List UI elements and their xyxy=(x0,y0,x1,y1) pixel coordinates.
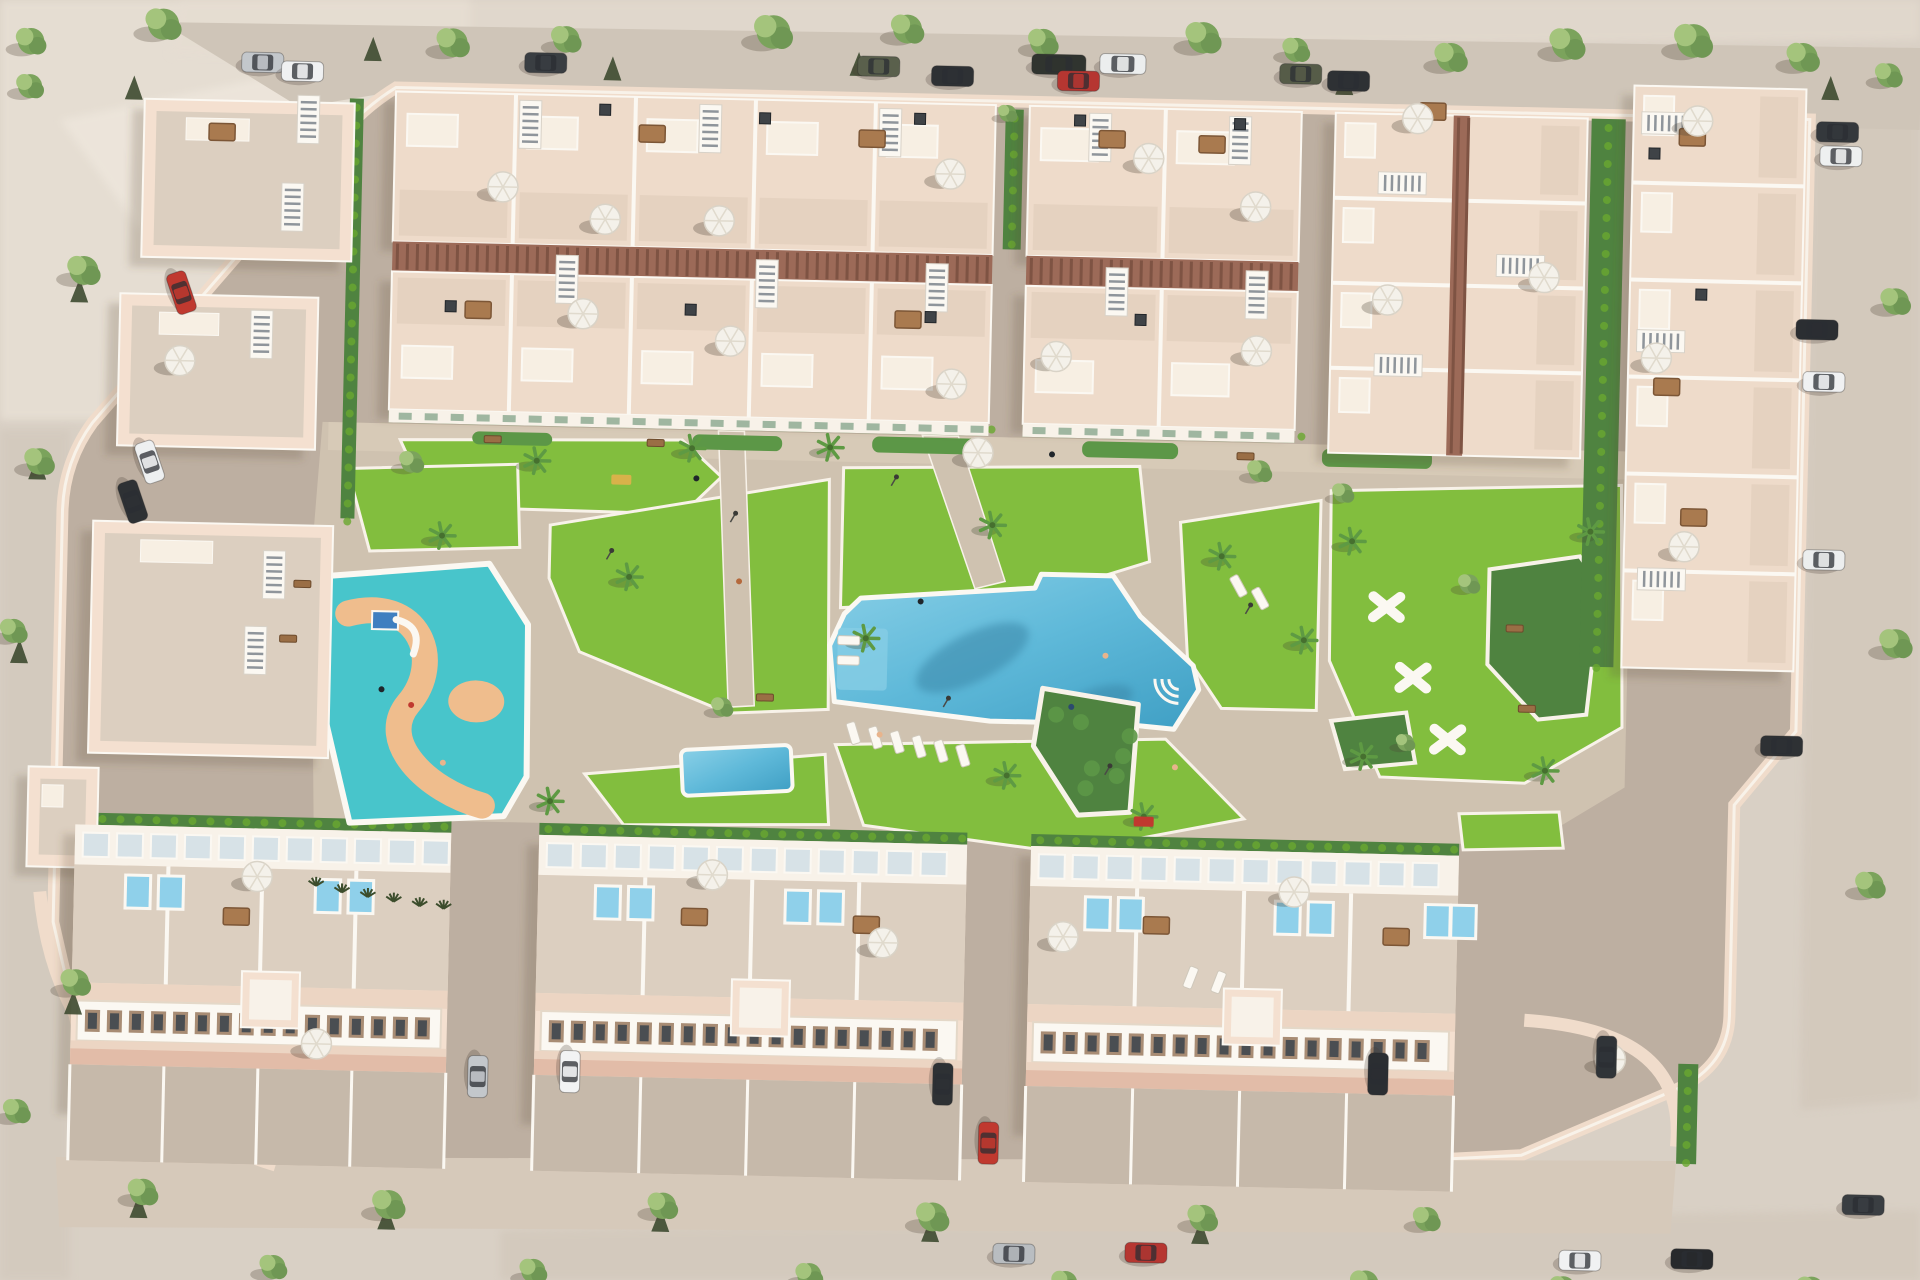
roof-staircase xyxy=(263,551,286,599)
stair-tower xyxy=(731,979,790,1036)
terrain-ground xyxy=(0,0,1920,1280)
car-shadow xyxy=(1273,67,1319,88)
car-shadow xyxy=(235,56,281,77)
bench xyxy=(484,436,501,443)
parasol-canopy xyxy=(568,298,599,329)
window-frame xyxy=(1216,1035,1231,1057)
roof-staircase xyxy=(755,260,778,308)
parasol-rib xyxy=(495,187,503,200)
party-wall xyxy=(749,280,752,418)
parasol-rib xyxy=(1141,158,1149,171)
parked-car xyxy=(1810,122,1859,147)
parasol-rib xyxy=(1676,547,1684,560)
tree-canopy xyxy=(450,38,470,58)
shrub-bed xyxy=(692,434,782,451)
roof-terrace xyxy=(1031,292,1156,341)
tree-canopy xyxy=(1350,1270,1368,1280)
townhouse-column-east-inner xyxy=(1328,113,1588,459)
roof-staircase xyxy=(925,264,948,312)
lamp-head xyxy=(894,474,899,479)
lawn-pool-east xyxy=(1176,497,1321,710)
facade-window xyxy=(815,422,828,429)
parked-car xyxy=(1592,1030,1617,1079)
palm-frond xyxy=(1004,775,1007,788)
person xyxy=(408,702,414,708)
rooftop-plunge-pool-frame xyxy=(123,873,152,910)
tree-shadow xyxy=(786,1277,814,1280)
parasol-rib xyxy=(1149,146,1157,159)
window-frame xyxy=(659,1023,674,1045)
hedge-strip xyxy=(1022,424,1294,443)
pergola-band xyxy=(1446,115,1470,455)
grass-blade xyxy=(420,901,428,906)
palm-shadow xyxy=(845,639,871,650)
roof-staircase xyxy=(519,100,542,148)
roof-staircase xyxy=(1105,268,1128,316)
roof-structure xyxy=(1632,581,1663,620)
facade-window xyxy=(581,417,594,424)
pergola-slat xyxy=(807,253,808,279)
rooftop-plunge-pool xyxy=(1426,906,1449,936)
lamp-head xyxy=(1107,763,1112,768)
palm-frond xyxy=(989,525,992,538)
grass-blade xyxy=(312,878,316,886)
pergola-slat xyxy=(1451,118,1459,454)
parasol-rib xyxy=(1603,1059,1611,1072)
aerial-render-stage xyxy=(0,0,1920,1280)
hedge-bush xyxy=(969,425,977,433)
parasol-canopy xyxy=(1133,143,1164,174)
hedge-bush xyxy=(1135,429,1143,437)
tree-canopy xyxy=(1690,35,1713,58)
parasol-shadow xyxy=(1230,351,1262,366)
hedge-bush xyxy=(1189,430,1197,438)
hedge-bush xyxy=(349,265,357,273)
palm-crown xyxy=(1349,538,1355,544)
hedge-bush xyxy=(352,121,360,129)
building-shadow xyxy=(1014,116,1289,272)
roof-staircase xyxy=(297,95,320,143)
tree-canopy xyxy=(1800,53,1820,73)
car-glass xyxy=(868,58,889,74)
hedge-bush xyxy=(832,832,840,840)
window-frame xyxy=(349,1016,364,1038)
car-body xyxy=(1596,1036,1617,1078)
facade-shadow xyxy=(534,1059,962,1085)
car-roof xyxy=(1141,1246,1152,1260)
rooftop-plunge-pool-frame xyxy=(593,884,622,921)
facade-shadow xyxy=(1026,1070,1454,1096)
hedge-bush xyxy=(1682,1141,1690,1149)
grass-blade xyxy=(363,889,367,897)
palm-shadow xyxy=(1200,557,1226,568)
glass-balcony xyxy=(423,840,450,865)
palm-crown xyxy=(626,574,632,580)
pergola-slat xyxy=(1111,260,1112,286)
tree-canopy xyxy=(24,448,42,466)
parasol-shadow xyxy=(1518,278,1550,293)
tree-canopy xyxy=(0,619,16,635)
pergola-slat xyxy=(897,255,898,281)
palm-frond xyxy=(1579,531,1591,537)
tree-shadow xyxy=(541,41,572,55)
hedge-bush xyxy=(1597,466,1605,474)
pergola-slat xyxy=(517,246,518,272)
lawn-west xyxy=(546,473,833,715)
hedge-bush xyxy=(1225,431,1233,439)
townhouse-row-ne-south xyxy=(1023,286,1298,430)
parasol-rib xyxy=(712,875,720,888)
car-roof xyxy=(1832,125,1843,139)
bottom-sidewalk xyxy=(54,1124,1676,1264)
tree-canopy xyxy=(1041,38,1059,56)
hedge-bush xyxy=(879,423,887,431)
south-window-band xyxy=(1032,1022,1449,1071)
building-shadow xyxy=(377,281,980,433)
patio-parasol xyxy=(925,369,967,400)
parasol-rib xyxy=(1536,277,1544,290)
window-frame xyxy=(637,1022,652,1044)
roof-terrace xyxy=(399,190,508,238)
parasol-shadow xyxy=(925,385,957,400)
car-body xyxy=(1279,64,1321,85)
parasol-rib xyxy=(249,876,257,889)
palm-frond xyxy=(550,791,558,801)
hedge-bush xyxy=(1595,538,1603,546)
car-body xyxy=(241,52,283,73)
hedge-bush xyxy=(260,819,268,827)
patio-parasol xyxy=(579,204,621,235)
window-frame xyxy=(239,1013,254,1035)
car-shadow xyxy=(518,56,564,77)
car-glass xyxy=(1813,374,1834,390)
shrub-bed xyxy=(1322,449,1432,469)
hedge-bush xyxy=(1171,430,1179,438)
hedge-bush xyxy=(1601,286,1609,294)
pool-steps xyxy=(1154,679,1179,704)
palm-frond xyxy=(1210,556,1222,562)
hedge-bush xyxy=(134,816,142,824)
tree-canopy xyxy=(1200,1214,1218,1232)
sun-lounger xyxy=(933,739,948,763)
tree xyxy=(1042,1270,1080,1280)
roof-terrace xyxy=(1758,96,1798,178)
tree xyxy=(741,14,794,52)
palm-frond xyxy=(1533,770,1545,776)
roof-structure xyxy=(1641,193,1672,232)
window-glass xyxy=(684,1026,693,1042)
terrace-divider xyxy=(643,877,646,995)
hedge-bush xyxy=(343,517,351,525)
tree-canopy xyxy=(81,266,101,286)
north-facade xyxy=(538,835,967,885)
window-glass xyxy=(396,1020,405,1036)
hedge-bush xyxy=(484,414,492,422)
car-roof xyxy=(1812,323,1823,337)
hedge-bush xyxy=(1450,846,1458,854)
parasol-rib xyxy=(180,348,188,361)
window-glass xyxy=(198,1015,207,1031)
roof-structure xyxy=(1177,131,1235,164)
pergola-band-nw xyxy=(392,241,993,285)
rooftop-ac-unit xyxy=(685,304,696,315)
tree xyxy=(1325,483,1355,504)
patio-parasol xyxy=(704,326,746,357)
window-frame xyxy=(85,1010,100,1032)
glass-balcony xyxy=(1310,860,1337,885)
lamp-post xyxy=(730,513,735,522)
roof-structure xyxy=(140,540,212,564)
roof-structure xyxy=(522,348,573,381)
roof-structure xyxy=(1343,208,1374,243)
party-wall xyxy=(1162,109,1165,259)
tree-canopy xyxy=(386,1200,406,1220)
window-glass xyxy=(904,1031,913,1047)
window-glass xyxy=(1219,1038,1228,1054)
hedge-bush xyxy=(538,415,546,423)
terrace-divider xyxy=(260,869,263,987)
tree-canopy xyxy=(893,14,922,43)
tree-canopy xyxy=(649,1192,676,1219)
pergola-slat xyxy=(1291,264,1292,290)
parasol-rib xyxy=(575,314,583,327)
hedge-bush xyxy=(1243,431,1251,439)
window-frame xyxy=(681,1023,696,1045)
tree xyxy=(1451,574,1481,595)
parasol-rib xyxy=(1380,287,1388,300)
palm-shadow xyxy=(671,449,697,460)
bench-bar xyxy=(1366,590,1407,624)
patio-parasol xyxy=(1268,876,1310,907)
parked-car xyxy=(925,65,974,90)
rooftop-plunge-pool xyxy=(1086,898,1109,928)
car-body xyxy=(116,478,148,524)
car-shadow xyxy=(555,1044,576,1090)
roof-staircase xyxy=(281,183,304,231)
tree-canopy xyxy=(410,458,425,473)
car-roof xyxy=(563,1066,577,1077)
hedge-bush xyxy=(344,481,352,489)
driveway-wall xyxy=(532,1075,534,1171)
hedge-bush xyxy=(904,833,912,841)
pergola-slat xyxy=(437,244,438,270)
pergola-slat xyxy=(877,254,878,280)
window-glass xyxy=(110,1013,119,1029)
lawn-south-strip xyxy=(584,749,831,830)
roof-structure xyxy=(42,785,63,807)
palm-frond xyxy=(854,638,866,644)
building-shadow xyxy=(1316,123,1576,469)
tree-canopy xyxy=(553,26,580,53)
parasol-shadow xyxy=(1584,1060,1616,1075)
parasol-rib xyxy=(1249,351,1257,364)
tree-canopy xyxy=(3,1099,19,1115)
island-foliage xyxy=(1077,780,1093,796)
palm-frond xyxy=(1545,771,1553,781)
tree-canopy xyxy=(1414,1207,1439,1232)
townhouse-column-east-outer xyxy=(1621,86,1806,672)
tree-canopy xyxy=(1396,734,1407,745)
window-frame xyxy=(724,1024,739,1046)
parasol-rib xyxy=(1677,534,1685,547)
walkway xyxy=(919,435,1008,589)
palm-shadow xyxy=(809,448,835,459)
driveway-wall xyxy=(162,1066,164,1162)
pergola-slat xyxy=(637,249,638,275)
tree-canopy xyxy=(1552,28,1584,60)
hedge-bush xyxy=(1682,1159,1690,1167)
glass-balcony xyxy=(784,848,811,873)
parasol-rib xyxy=(1388,287,1396,300)
hedge-bush xyxy=(688,828,696,836)
party-wall xyxy=(1334,198,1586,204)
car-body xyxy=(1760,736,1802,757)
patio-parasol xyxy=(1630,343,1672,374)
tree-canopy xyxy=(130,1179,157,1206)
parapet xyxy=(71,982,447,1009)
parked-car xyxy=(275,61,324,86)
glass-balcony xyxy=(185,835,212,860)
patio-parasol xyxy=(1518,262,1560,293)
parasol-rib xyxy=(705,875,713,888)
tree-canopy xyxy=(1434,43,1454,63)
tree-canopy xyxy=(374,1190,403,1219)
glass-balcony xyxy=(1378,862,1405,887)
person xyxy=(918,598,924,604)
car-shadow xyxy=(275,65,321,86)
pergola-slat xyxy=(657,249,658,275)
window-glass xyxy=(794,1029,803,1045)
tree-canopy xyxy=(1857,872,1884,899)
tree-canopy xyxy=(28,82,44,98)
parasol-rib xyxy=(316,1031,324,1044)
parasol-shadow xyxy=(1671,121,1703,136)
window-frame xyxy=(1172,1034,1187,1056)
pergola-slat xyxy=(1201,262,1202,288)
parasol-rib xyxy=(943,174,951,187)
car-roof xyxy=(1073,74,1084,88)
roof-structure xyxy=(527,116,578,149)
parasol-rib xyxy=(503,174,511,187)
parasol-rib xyxy=(970,453,978,466)
x-shaped-garden-bench xyxy=(1392,660,1434,696)
driveway-wall xyxy=(1451,1096,1453,1192)
palm-frond xyxy=(1292,640,1304,646)
tree-shadow xyxy=(741,34,781,52)
tree-shadow xyxy=(0,1113,22,1126)
parasol-rib xyxy=(944,371,952,384)
pergola-slat xyxy=(917,255,918,281)
pergola-slat xyxy=(557,247,558,273)
palm-frond xyxy=(827,447,830,460)
hedge-bush xyxy=(886,833,894,841)
rooftop-plunge-pool xyxy=(349,882,372,912)
window-frame xyxy=(856,1027,871,1049)
hedge-bush xyxy=(1598,430,1606,438)
bench xyxy=(1518,705,1535,712)
secondary-pool xyxy=(681,745,793,796)
pool-deck xyxy=(306,422,1633,848)
window-glass xyxy=(728,1027,737,1043)
facade-window xyxy=(970,426,983,433)
pergola-slat xyxy=(737,251,738,277)
parasol-rib xyxy=(730,341,738,354)
facade-window xyxy=(1084,428,1097,435)
palm-frond xyxy=(1352,751,1364,757)
parasol-shadow xyxy=(704,342,736,357)
site-furniture-vehicles-vegetation xyxy=(0,0,1920,1280)
tree-shadow xyxy=(1775,59,1809,74)
window-glass xyxy=(882,1031,891,1047)
hedge-bush xyxy=(580,826,588,834)
pergola-slat xyxy=(1181,261,1182,287)
palm-frond xyxy=(1363,746,1371,756)
party-wall xyxy=(753,100,756,250)
window-glass xyxy=(1263,1039,1272,1055)
palm-frond xyxy=(525,455,537,461)
car-shadow xyxy=(1797,553,1843,574)
tree-canopy xyxy=(69,256,98,285)
terrace-divider xyxy=(1348,893,1351,1011)
hedge-bush xyxy=(922,834,930,842)
palm-shadow xyxy=(985,776,1011,787)
roof-structure xyxy=(186,118,249,141)
hedge-bush xyxy=(556,416,564,424)
parasol-rib xyxy=(172,360,180,373)
palm-frond xyxy=(692,438,700,448)
patio-furniture xyxy=(1099,130,1125,148)
tree-canopy xyxy=(1436,43,1465,72)
palm-shadow xyxy=(1342,757,1368,768)
pergola-slat xyxy=(407,244,408,270)
tree-canopy xyxy=(1247,460,1262,475)
hedge-bush xyxy=(1593,628,1601,636)
tree-canopy xyxy=(60,969,78,987)
parapet xyxy=(535,993,963,1021)
hedge-bush xyxy=(347,355,355,363)
car-glass xyxy=(1853,1197,1874,1213)
palm-frond xyxy=(1588,519,1591,532)
tree-canopy xyxy=(1549,1276,1565,1280)
pergola-slat xyxy=(667,250,668,276)
palm-frond xyxy=(827,435,830,448)
tree-shadow xyxy=(880,31,914,46)
car-glass xyxy=(934,1073,950,1094)
parasol-rib xyxy=(1544,265,1552,278)
hedge-bush xyxy=(314,820,322,828)
tree-canopy xyxy=(711,697,724,710)
hedge-bush xyxy=(1599,376,1607,384)
tree-canopy xyxy=(1030,29,1057,56)
car-glass xyxy=(470,1066,486,1087)
complex-base-pavement xyxy=(48,80,1810,1209)
roof-staircase xyxy=(879,108,902,156)
pergola-slat xyxy=(507,246,508,272)
person xyxy=(693,475,699,481)
bench-bar xyxy=(1366,589,1406,625)
hedge-bush xyxy=(1324,843,1332,851)
facade-window xyxy=(1214,431,1227,438)
tree xyxy=(1866,63,1904,90)
glass-balcony xyxy=(1140,857,1167,882)
palm-crown xyxy=(547,798,553,804)
parasol-shadow xyxy=(477,187,509,202)
palm-frond xyxy=(538,801,550,807)
hedge-bush xyxy=(1602,214,1610,222)
tree-canopy xyxy=(1551,1276,1576,1280)
palm-frond xyxy=(1360,757,1363,770)
pergola-slat xyxy=(1251,263,1252,289)
